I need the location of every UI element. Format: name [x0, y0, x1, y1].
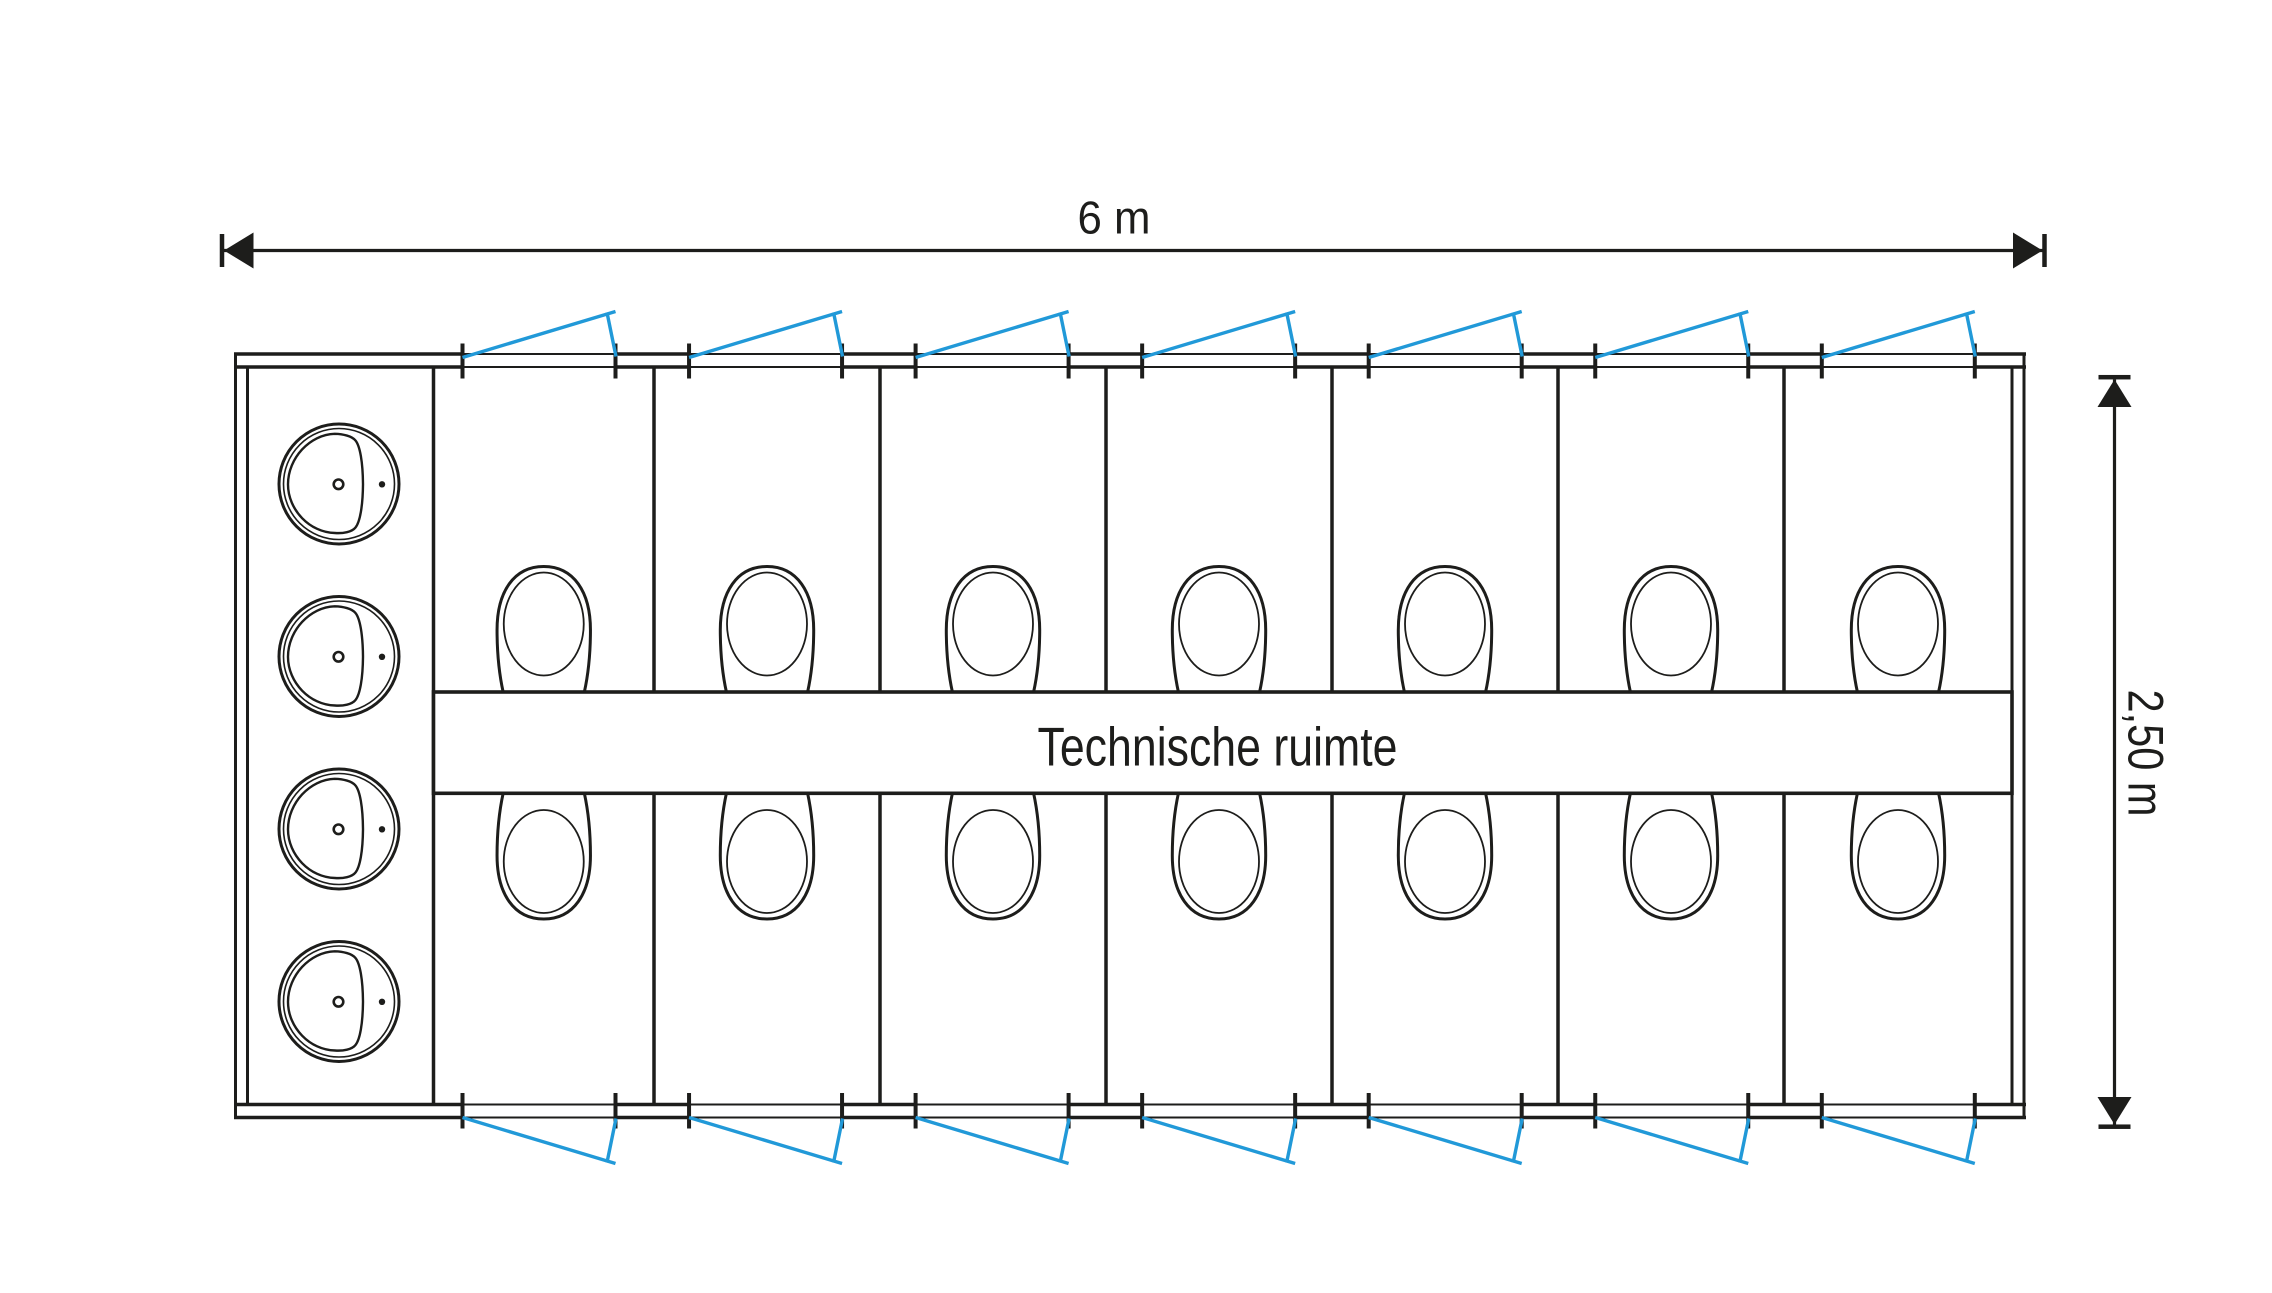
svg-text:2,50 m: 2,50 m — [2118, 690, 2174, 817]
svg-text:Technische ruimte: Technische ruimte — [1038, 716, 1398, 778]
svg-text:6 m: 6 m — [1078, 192, 1151, 244]
